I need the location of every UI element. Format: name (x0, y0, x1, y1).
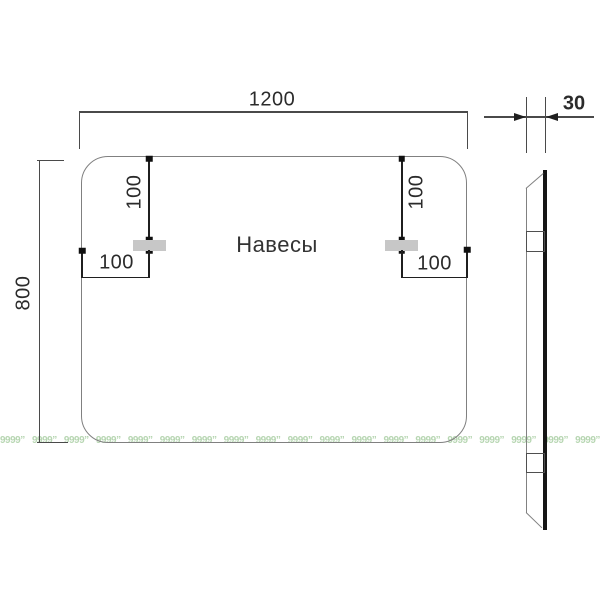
depth-arrow-left-icon (514, 113, 526, 121)
right-edge-marker (464, 247, 471, 254)
depth-dimension-label: 30 (563, 93, 585, 116)
watermark-glyph-group: 9999” (543, 435, 568, 446)
depth-dimension-line (484, 116, 594, 117)
depth-extension-line-left (526, 97, 527, 153)
width-extension-line-right (467, 111, 468, 149)
side-view-bottom-chamfer (526, 513, 543, 529)
left-hanger-top-marker (146, 155, 153, 162)
left-inset-dimension-line (81, 277, 150, 279)
left-edge-marker (79, 247, 86, 254)
side-view-upper-hanger-bracket (526, 231, 545, 252)
height-dimension-label: 800 (13, 276, 36, 311)
watermark-glyph-group: 9999” (575, 435, 600, 446)
height-dimension-line (39, 160, 40, 442)
left-hanger-drop-label: 100 (124, 175, 147, 210)
watermark-glyph-group: 9999” (0, 435, 25, 446)
right-hanger-bracket (385, 240, 418, 251)
width-extension-line-left (79, 111, 80, 149)
width-dimension-label: 1200 (249, 89, 296, 112)
right-inset-label: 100 (417, 252, 452, 275)
watermark-glyph-group: 9999” (64, 435, 89, 446)
right-hanger-drop-label: 100 (405, 175, 428, 210)
height-extension-line-top (37, 160, 64, 161)
watermark-glyph-group: 9999” (479, 435, 504, 446)
left-inset-label: 100 (99, 252, 134, 275)
side-view-back-panel (543, 170, 547, 530)
left-inset-bracket-line-outer (81, 250, 83, 278)
watermark-glyph-group: 9999” (511, 435, 536, 446)
right-inset-dimension-line (401, 277, 468, 279)
technical-drawing-canvas: 9999”9999”9999”9999”9999”9999”9999”9999”… (0, 0, 600, 600)
depth-arrow-right-icon (546, 113, 558, 121)
right-inset-bracket-line-inner (401, 250, 403, 278)
depth-extension-line-right (545, 97, 546, 153)
side-view-lower-hanger-bracket (526, 453, 545, 474)
height-extension-line-bottom (37, 442, 68, 443)
watermark-glyph-group: 9999” (32, 435, 57, 446)
right-inset-bracket-line-outer (466, 250, 468, 279)
width-dimension-line (79, 111, 468, 112)
drawing-title: Навесы (236, 232, 318, 258)
left-hanger-bracket (133, 240, 166, 251)
side-view-top-chamfer (526, 173, 544, 189)
left-inset-bracket-line-inner (148, 250, 150, 278)
right-hanger-top-marker (398, 155, 405, 162)
